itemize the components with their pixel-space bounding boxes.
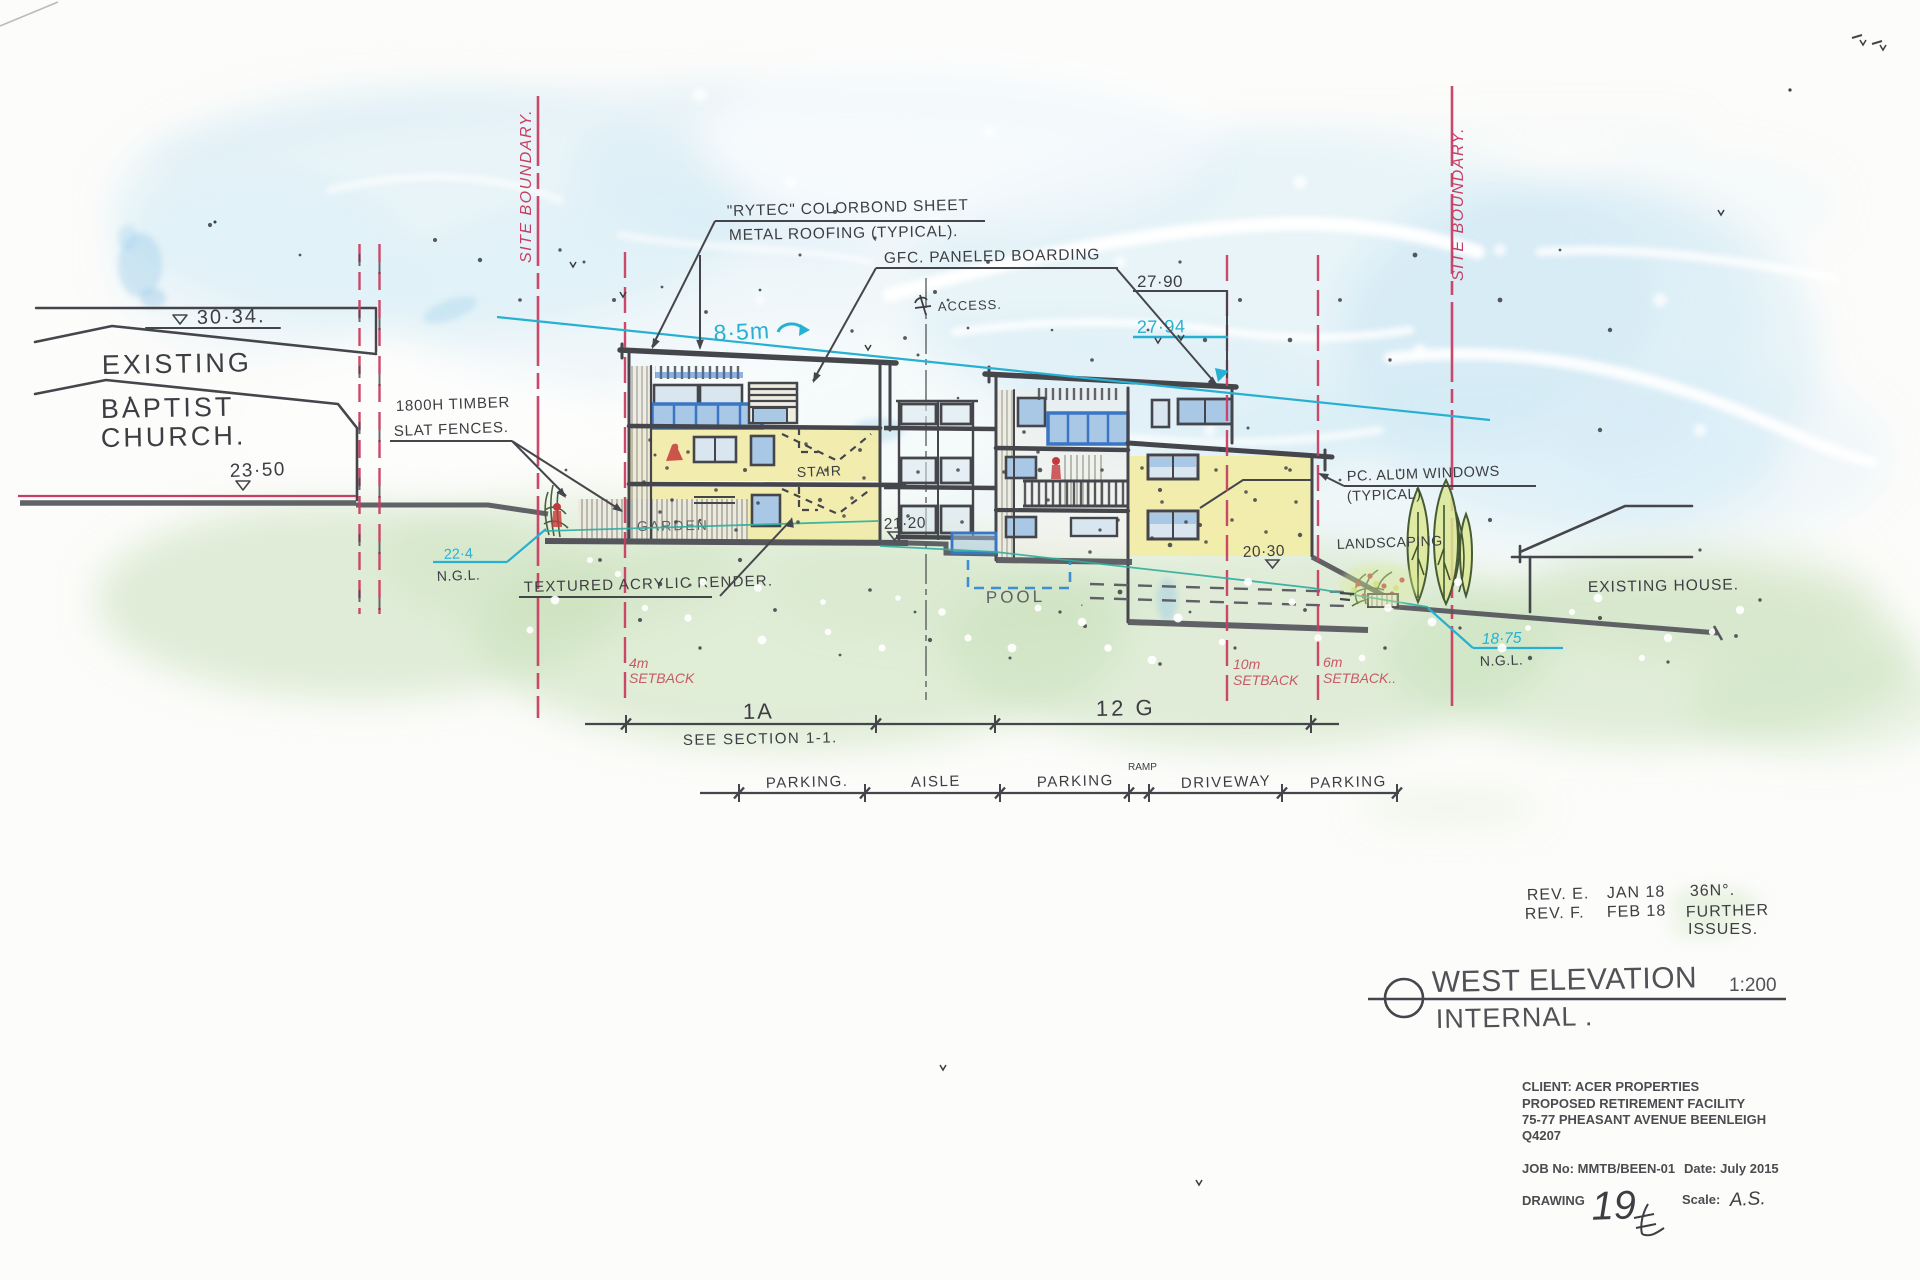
svg-text:SEE SECTION 1-1.: SEE SECTION 1-1.: [683, 729, 838, 749]
svg-text:Q4207: Q4207: [1522, 1128, 1561, 1143]
svg-text:CLIENT: ACER PROPERTIES: CLIENT: ACER PROPERTIES: [1522, 1079, 1700, 1094]
svg-text:1A: 1A: [743, 698, 774, 724]
svg-text:STAIR: STAIR: [797, 462, 843, 480]
svg-text:SETBACK: SETBACK: [1233, 672, 1299, 688]
svg-text:FEB 18: FEB 18: [1607, 902, 1667, 921]
svg-text:.: .: [1080, 594, 1084, 609]
svg-text:10m: 10m: [1233, 656, 1261, 672]
svg-text:30·34.: 30·34.: [197, 305, 266, 329]
svg-text:JOB No: MMTB/BEEN-01: JOB No: MMTB/BEEN-01: [1522, 1161, 1675, 1176]
svg-text:23·50: 23·50: [229, 459, 286, 482]
svg-text:N.G.L.: N.G.L.: [437, 566, 481, 584]
svg-text:CHURCH.: CHURCH.: [101, 420, 247, 453]
svg-text:27·90: 27·90: [1137, 272, 1183, 291]
svg-text:N.G.L.: N.G.L.: [1480, 651, 1524, 669]
svg-text:FURTHER: FURTHER: [1686, 902, 1770, 921]
svg-text:36N°.: 36N°.: [1690, 882, 1736, 900]
svg-text:EXISTING: EXISTING: [102, 347, 253, 380]
svg-text:6m: 6m: [1323, 654, 1343, 670]
svg-text:PARKING: PARKING: [1037, 772, 1114, 791]
svg-text:Scale:: Scale:: [1682, 1192, 1720, 1207]
svg-text:A.S.: A.S.: [1728, 1188, 1766, 1211]
svg-text:BAPTIST: BAPTIST: [101, 392, 235, 424]
svg-text:AISLE: AISLE: [911, 773, 961, 791]
svg-text:RAMP: RAMP: [1128, 762, 1157, 773]
svg-text:22·4: 22·4: [444, 546, 474, 563]
svg-text:REV. F.: REV. F.: [1525, 904, 1585, 923]
svg-text:WEST ELEVATION: WEST ELEVATION: [1432, 961, 1698, 999]
svg-text:4m: 4m: [629, 655, 649, 671]
svg-text:PROPOSED RETIREMENT FACILITY: PROPOSED RETIREMENT FACILITY: [1522, 1096, 1746, 1111]
svg-text:75-77 PHEASANT AVENUE BEENLEIG: 75-77 PHEASANT AVENUE BEENLEIGH: [1522, 1112, 1766, 1127]
svg-text:21·20: 21·20: [884, 515, 927, 533]
svg-text:20·30: 20·30: [1243, 543, 1286, 561]
svg-text:REV. E.: REV. E.: [1527, 885, 1590, 904]
svg-text:SETBACK..: SETBACK..: [1323, 670, 1396, 686]
svg-text:SITE BOUNDARY.: SITE BOUNDARY.: [1450, 127, 1467, 281]
svg-text:POOL: POOL: [986, 587, 1046, 607]
svg-text:19: 19: [1591, 1183, 1637, 1229]
svg-text:(TYPICAL): (TYPICAL): [1347, 486, 1422, 505]
svg-text:EXISTING HOUSE.: EXISTING HOUSE.: [1588, 576, 1739, 596]
svg-text:ISSUES.: ISSUES.: [1688, 921, 1758, 938]
svg-text:SITE BOUNDARY.: SITE BOUNDARY.: [518, 109, 535, 263]
svg-text:12 G: 12 G: [1096, 695, 1156, 721]
svg-text:PARKING.: PARKING.: [766, 773, 849, 792]
svg-text:PARKING: PARKING: [1310, 773, 1387, 792]
svg-text:Date: July 2015: Date: July 2015: [1684, 1161, 1779, 1176]
svg-text:DRIVEWAY: DRIVEWAY: [1181, 773, 1272, 792]
svg-text:DRAWING: DRAWING: [1522, 1193, 1585, 1208]
svg-text:8·5m: 8·5m: [713, 317, 771, 346]
svg-text:GARDEN: GARDEN: [637, 517, 709, 534]
svg-text:INTERNAL .: INTERNAL .: [1436, 1001, 1594, 1034]
svg-text:SETBACK: SETBACK: [629, 670, 695, 686]
svg-text:1:200: 1:200: [1729, 975, 1777, 996]
svg-text:JAN 18: JAN 18: [1607, 883, 1666, 902]
